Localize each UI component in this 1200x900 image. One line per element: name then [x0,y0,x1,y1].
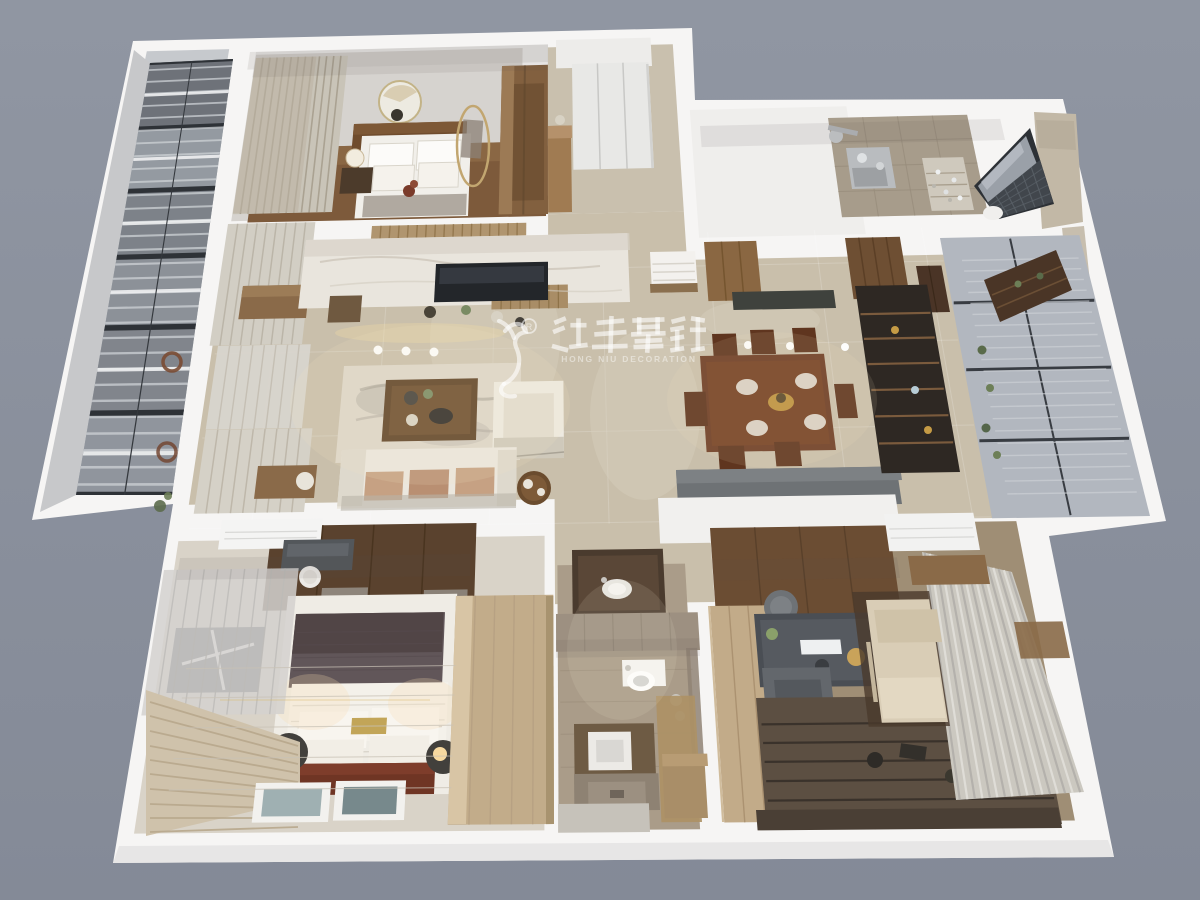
svg-text:R: R [526,322,533,332]
svg-text:HONG NIU DECORATION: HONG NIU DECORATION [561,354,697,364]
